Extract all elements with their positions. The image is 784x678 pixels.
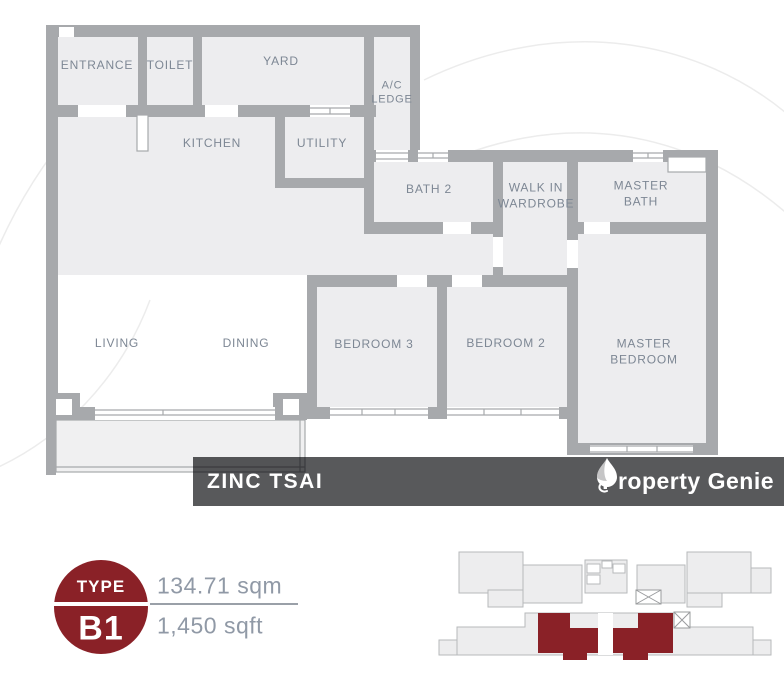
floorplan-page: ENTRANCE TOILET YARD A/C LEDGE KITCHEN U…	[0, 0, 784, 678]
room-label-bath2: BATH 2	[406, 182, 452, 198]
project-title: ZINC TSAI	[207, 457, 323, 506]
brand-logo: Property Genie	[594, 457, 774, 506]
room-label-entrance: ENTRANCE	[61, 58, 133, 74]
banner-content: ZINC TSAI Property Genie	[193, 457, 784, 506]
unit-key-plan	[439, 552, 771, 660]
room-label-utility: UTILITY	[297, 136, 347, 152]
room-label-master-bedroom: MASTER BEDROOM	[602, 336, 687, 367]
type-label: TYPE	[77, 577, 125, 597]
brand-name: Property Genie	[602, 468, 774, 495]
room-label-ac-ledge: A/C LEDGE	[367, 79, 417, 108]
room-label-toilet: TOILET	[147, 58, 194, 74]
room-label-bedroom3: BEDROOM 3	[334, 337, 413, 353]
room-label-bedroom2: BEDROOM 2	[466, 336, 545, 352]
area-sqm: 134.71 sqm	[157, 573, 282, 600]
area-sqft: 1,450 sqft	[157, 613, 263, 640]
room-label-dining: DINING	[223, 336, 270, 352]
room-label-walk-in-wardrobe: WALK IN WARDROBE	[491, 180, 581, 211]
type-code: B1	[78, 610, 123, 649]
room-label-master-bath: MASTER BATH	[601, 178, 681, 209]
room-label-yard: YARD	[263, 54, 299, 70]
room-label-living: LIVING	[95, 336, 139, 352]
room-label-kitchen: KITCHEN	[183, 136, 241, 152]
